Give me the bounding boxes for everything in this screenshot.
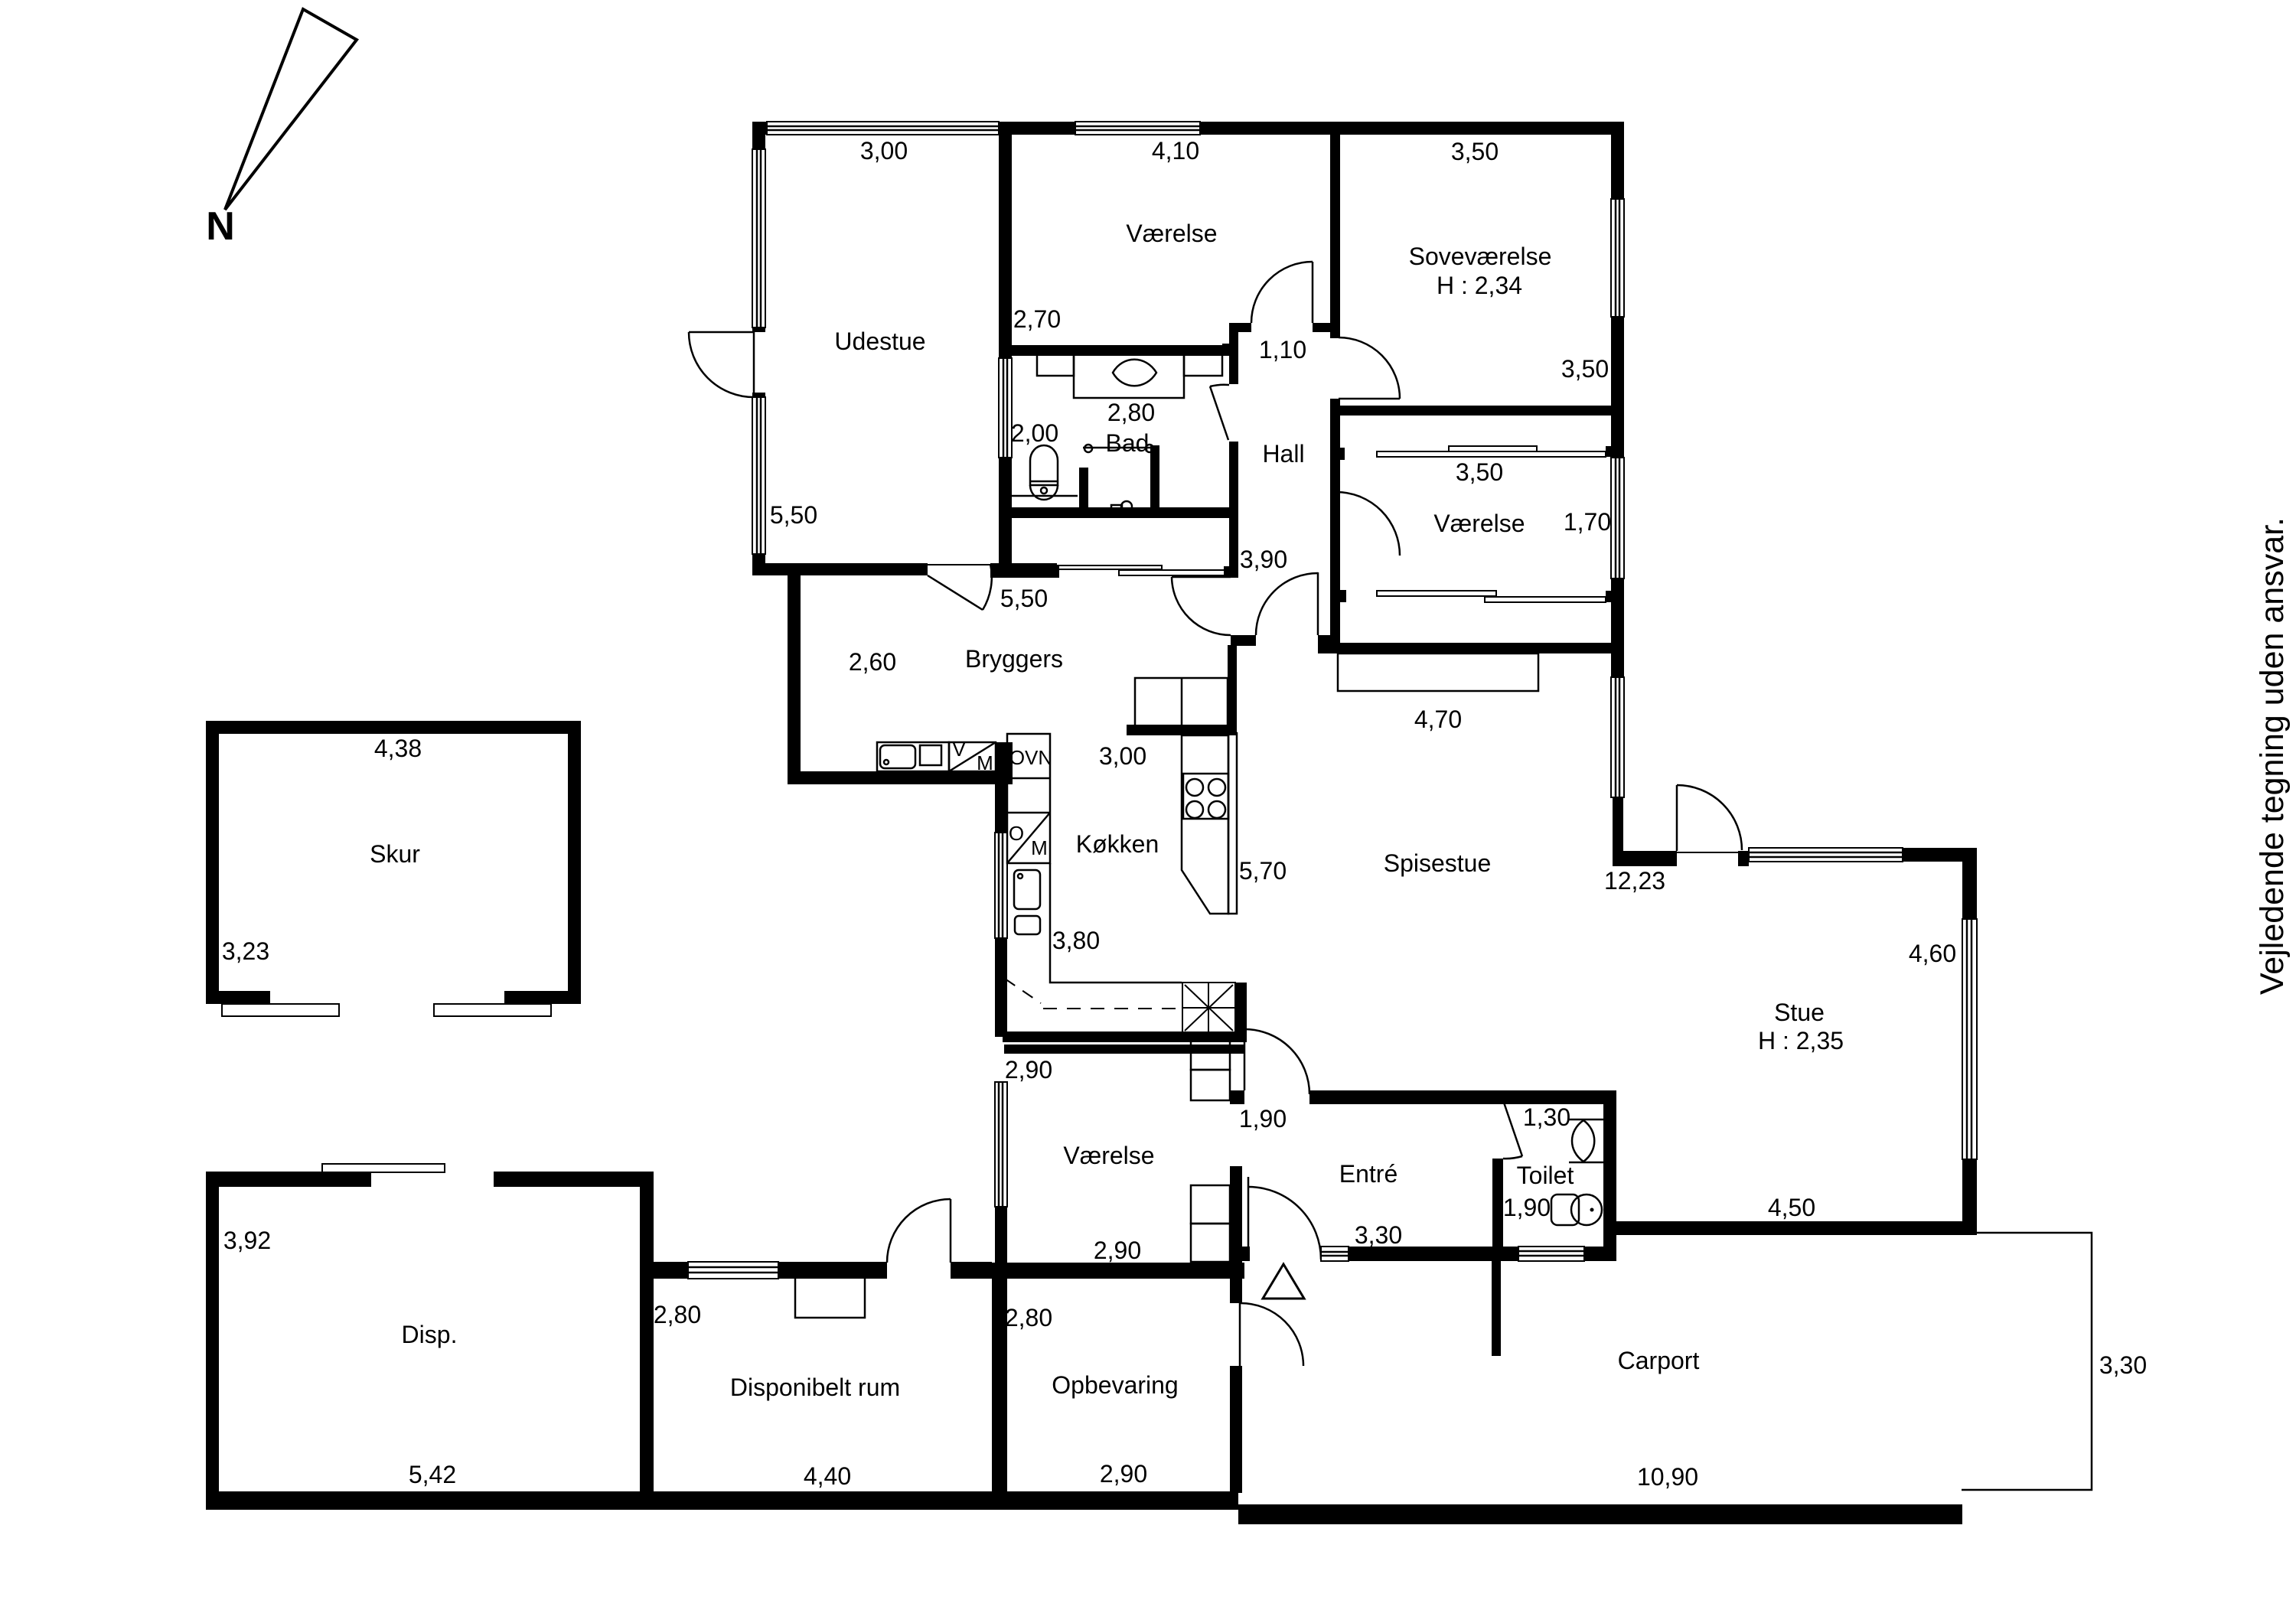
svg-text:5,70: 5,70 (1239, 857, 1287, 885)
svg-text:Opbevaring: Opbevaring (1052, 1371, 1178, 1399)
svg-text:Hall: Hall (1262, 440, 1304, 468)
svg-text:4,10: 4,10 (1152, 137, 1199, 165)
svg-text:5,50: 5,50 (1000, 585, 1048, 612)
svg-text:3,50: 3,50 (1451, 138, 1499, 165)
svg-text:Stue: Stue (1774, 999, 1825, 1026)
svg-text:12,23: 12,23 (1604, 867, 1665, 895)
svg-text:3,92: 3,92 (223, 1227, 271, 1254)
svg-text:OVN: OVN (1009, 746, 1052, 769)
svg-text:H : 2,35: H : 2,35 (1758, 1027, 1844, 1054)
svg-text:3,90: 3,90 (1240, 546, 1287, 573)
svg-text:Spisestue: Spisestue (1384, 849, 1492, 877)
svg-text:2,80: 2,80 (1005, 1304, 1052, 1331)
svg-text:4,60: 4,60 (1909, 940, 1956, 967)
svg-text:1,30: 1,30 (1523, 1103, 1570, 1131)
svg-text:1,90: 1,90 (1239, 1105, 1287, 1133)
svg-text:2,90: 2,90 (1094, 1237, 1141, 1264)
svg-text:Carport: Carport (1618, 1347, 1700, 1374)
svg-text:1,70: 1,70 (1564, 508, 1611, 536)
svg-text:10,90: 10,90 (1637, 1463, 1698, 1491)
svg-text:Værelse: Værelse (1063, 1142, 1154, 1169)
svg-text:M: M (977, 751, 993, 774)
svg-text:3,30: 3,30 (1355, 1221, 1402, 1249)
svg-text:4,38: 4,38 (374, 735, 422, 762)
svg-text:5,42: 5,42 (409, 1461, 456, 1488)
svg-text:N: N (206, 204, 235, 249)
svg-text:2,80: 2,80 (1107, 399, 1155, 426)
svg-text:Værelse: Værelse (1126, 220, 1217, 247)
svg-text:5,50: 5,50 (770, 501, 817, 529)
svg-text:Vejledende tegning uden ansvar: Vejledende tegning uden ansvar. (2254, 517, 2291, 995)
svg-text:Bad: Bad (1106, 429, 1150, 457)
svg-text:Udestue: Udestue (834, 328, 925, 355)
svg-text:3,00: 3,00 (1099, 742, 1146, 770)
svg-text:3,23: 3,23 (222, 937, 269, 965)
svg-text:Toilet: Toilet (1517, 1162, 1574, 1189)
svg-text:3,50: 3,50 (1456, 458, 1503, 486)
svg-text:2,80: 2,80 (654, 1301, 701, 1328)
svg-text:4,50: 4,50 (1768, 1194, 1815, 1221)
svg-text:Bryggers: Bryggers (965, 645, 1063, 673)
svg-text:2,70: 2,70 (1013, 305, 1061, 333)
svg-text:1,10: 1,10 (1259, 336, 1306, 363)
svg-text:O: O (1009, 822, 1024, 845)
svg-text:Entré: Entré (1339, 1160, 1397, 1188)
svg-text:2,60: 2,60 (849, 648, 896, 676)
svg-text:4,70: 4,70 (1414, 706, 1462, 733)
svg-text:3,00: 3,00 (860, 137, 908, 165)
svg-text:H : 2,34: H : 2,34 (1437, 272, 1522, 299)
svg-text:Disp.: Disp. (402, 1321, 458, 1348)
svg-text:2,90: 2,90 (1005, 1056, 1052, 1084)
svg-text:Køkken: Køkken (1076, 830, 1159, 858)
svg-text:2,90: 2,90 (1100, 1460, 1147, 1488)
svg-text:1,90: 1,90 (1503, 1194, 1551, 1221)
svg-text:Disponibelt rum: Disponibelt rum (730, 1374, 900, 1401)
svg-text:Værelse: Værelse (1433, 510, 1525, 537)
svg-text:Soveværelse: Soveværelse (1409, 243, 1552, 270)
svg-text:3,30: 3,30 (2099, 1351, 2147, 1379)
svg-text:V: V (952, 738, 966, 761)
svg-text:3,50: 3,50 (1561, 355, 1609, 383)
svg-text:4,40: 4,40 (804, 1462, 851, 1490)
svg-text:M: M (1031, 836, 1048, 859)
svg-text:2,00: 2,00 (1011, 419, 1058, 447)
svg-text:Skur: Skur (370, 840, 420, 868)
svg-text:3,80: 3,80 (1052, 927, 1100, 954)
